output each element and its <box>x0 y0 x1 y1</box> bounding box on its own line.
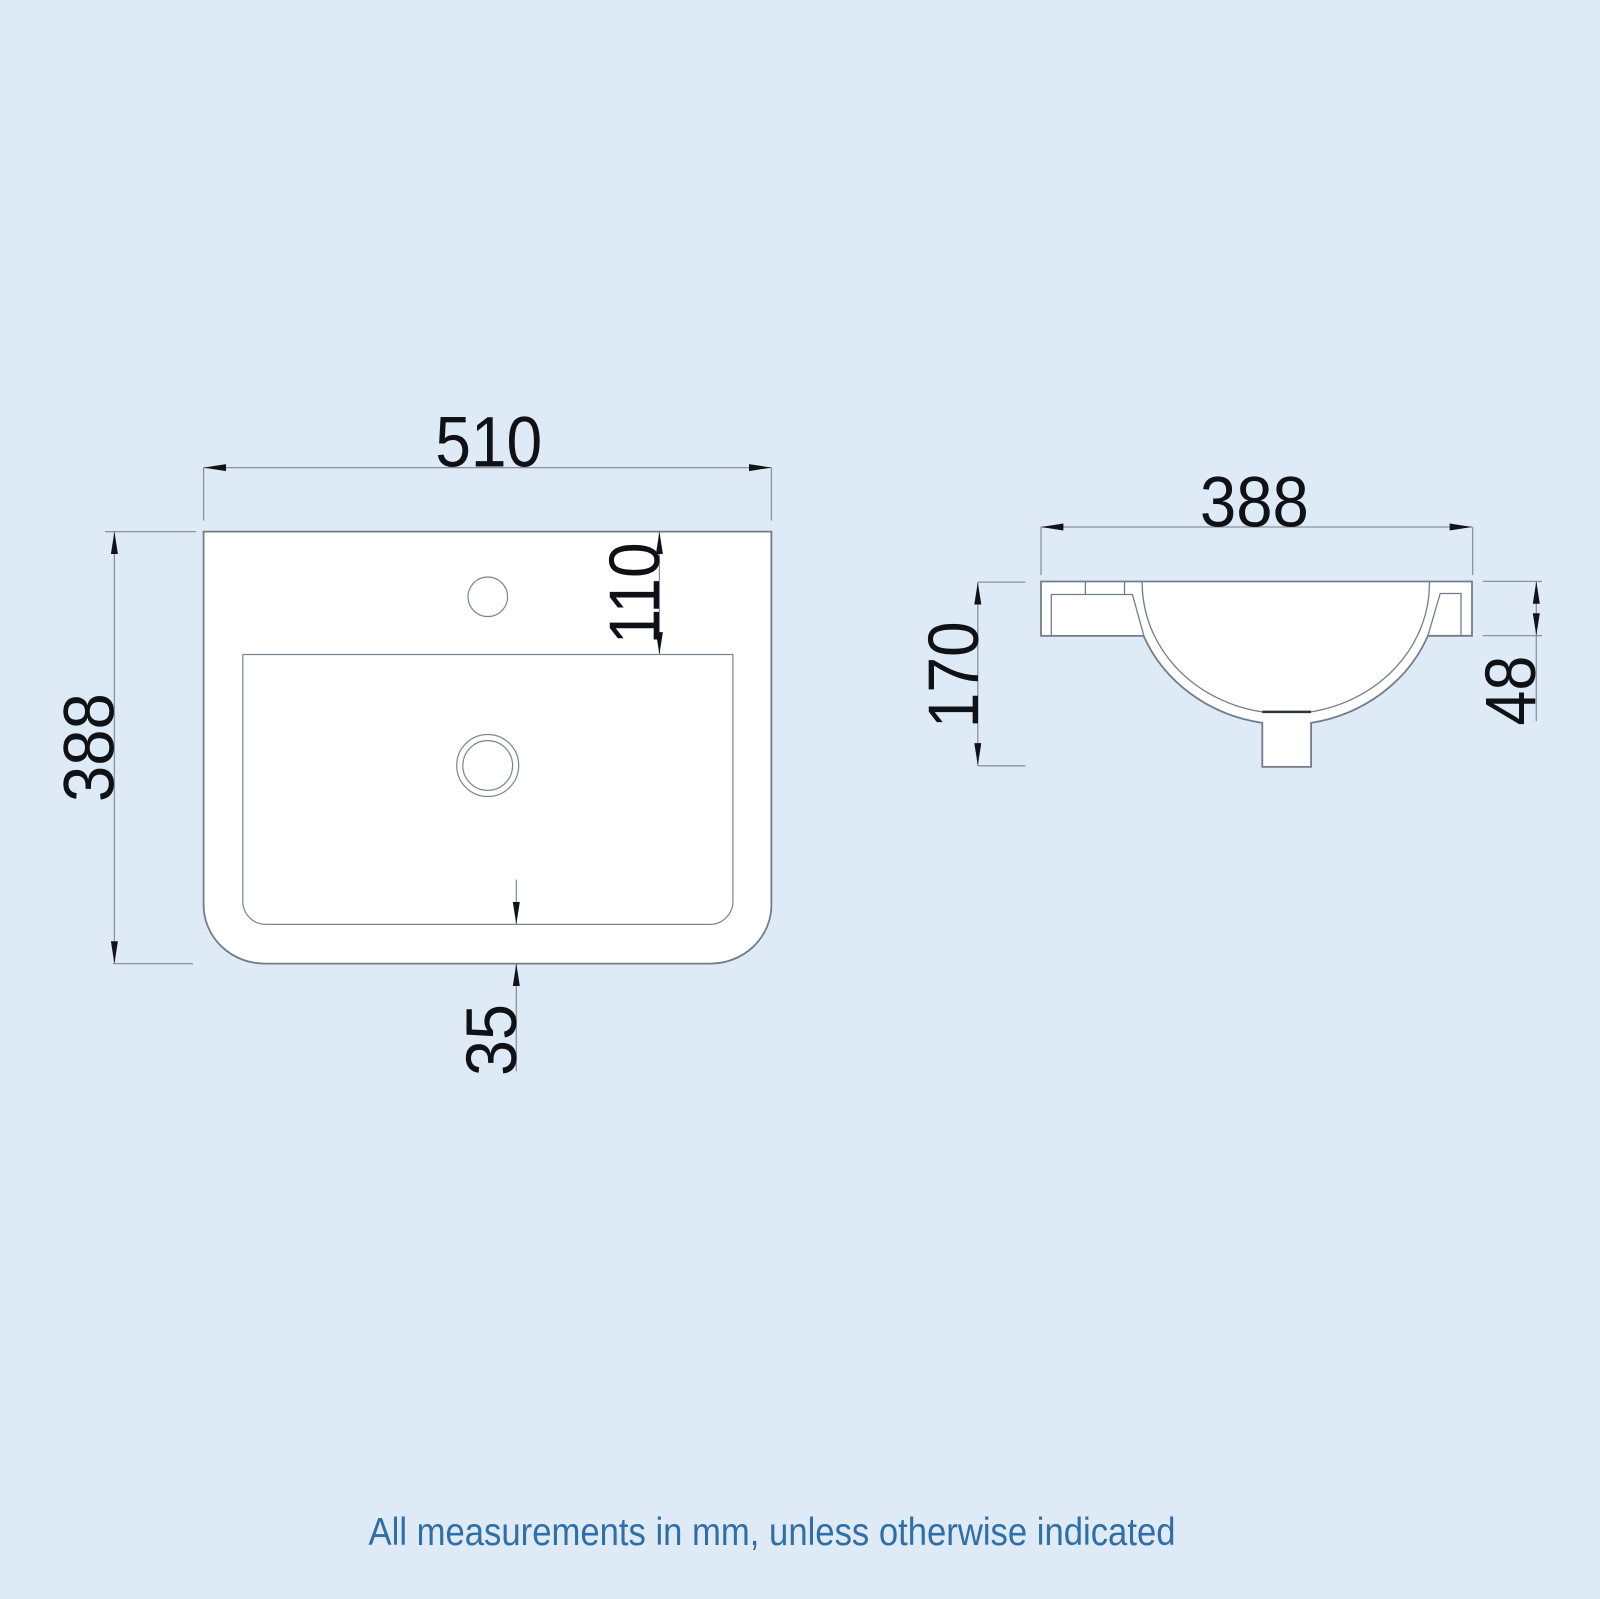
svg-text:388: 388 <box>51 693 130 802</box>
svg-text:510: 510 <box>435 404 542 483</box>
svg-text:388: 388 <box>1200 464 1309 543</box>
svg-text:170: 170 <box>915 621 994 728</box>
svg-text:35: 35 <box>453 1004 532 1076</box>
svg-text:110: 110 <box>596 542 675 644</box>
svg-text:48: 48 <box>1472 656 1551 726</box>
svg-text:All measurements in mm, unless: All measurements in mm, unless otherwise… <box>369 1511 1176 1554</box>
